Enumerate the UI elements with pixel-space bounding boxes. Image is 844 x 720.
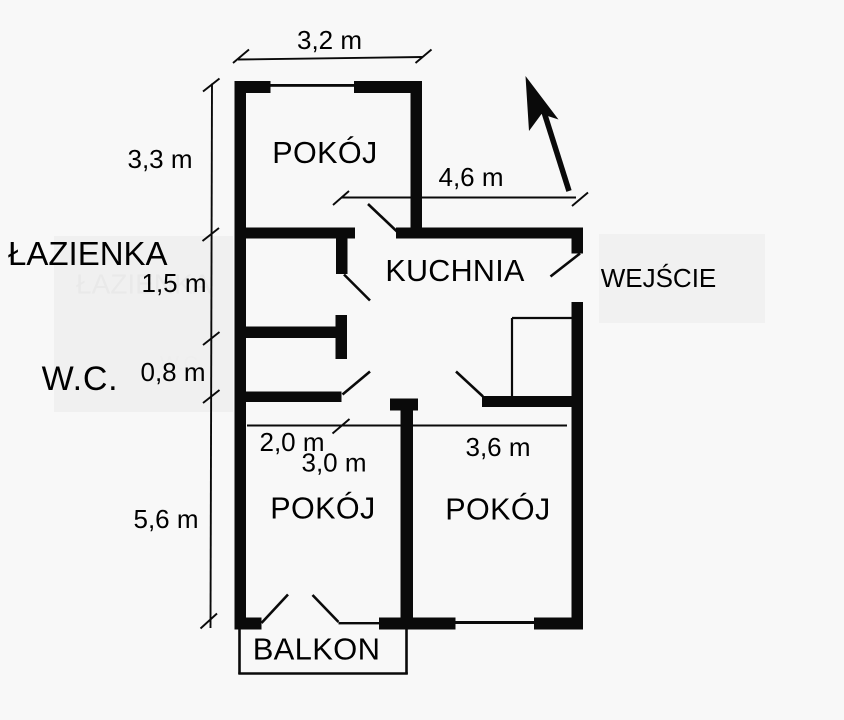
svg-text:BALKON: BALKON [253, 632, 381, 667]
svg-text:3,2 m: 3,2 m [297, 25, 362, 55]
svg-text:POKÓJ: POKÓJ [270, 491, 375, 526]
svg-text:POKÓJ: POKÓJ [445, 492, 550, 527]
svg-text:4,6 m: 4,6 m [438, 162, 503, 192]
svg-text:5,6 m: 5,6 m [133, 504, 198, 534]
svg-text:3,6 m: 3,6 m [465, 432, 530, 462]
svg-text:3,0 m: 3,0 m [301, 448, 366, 478]
svg-text:POKÓJ: POKÓJ [272, 135, 377, 170]
svg-text:KUCHNIA: KUCHNIA [385, 254, 525, 288]
svg-text:WEJŚCIE: WEJŚCIE [601, 263, 717, 293]
svg-text:0,8 m: 0,8 m [140, 357, 205, 387]
svg-text:ŁAZIENKA: ŁAZIENKA [8, 235, 168, 272]
svg-text:1,5 m: 1,5 m [141, 268, 206, 298]
svg-text:3,3 m: 3,3 m [127, 144, 192, 174]
svg-text:W.C.: W.C. [42, 360, 119, 398]
